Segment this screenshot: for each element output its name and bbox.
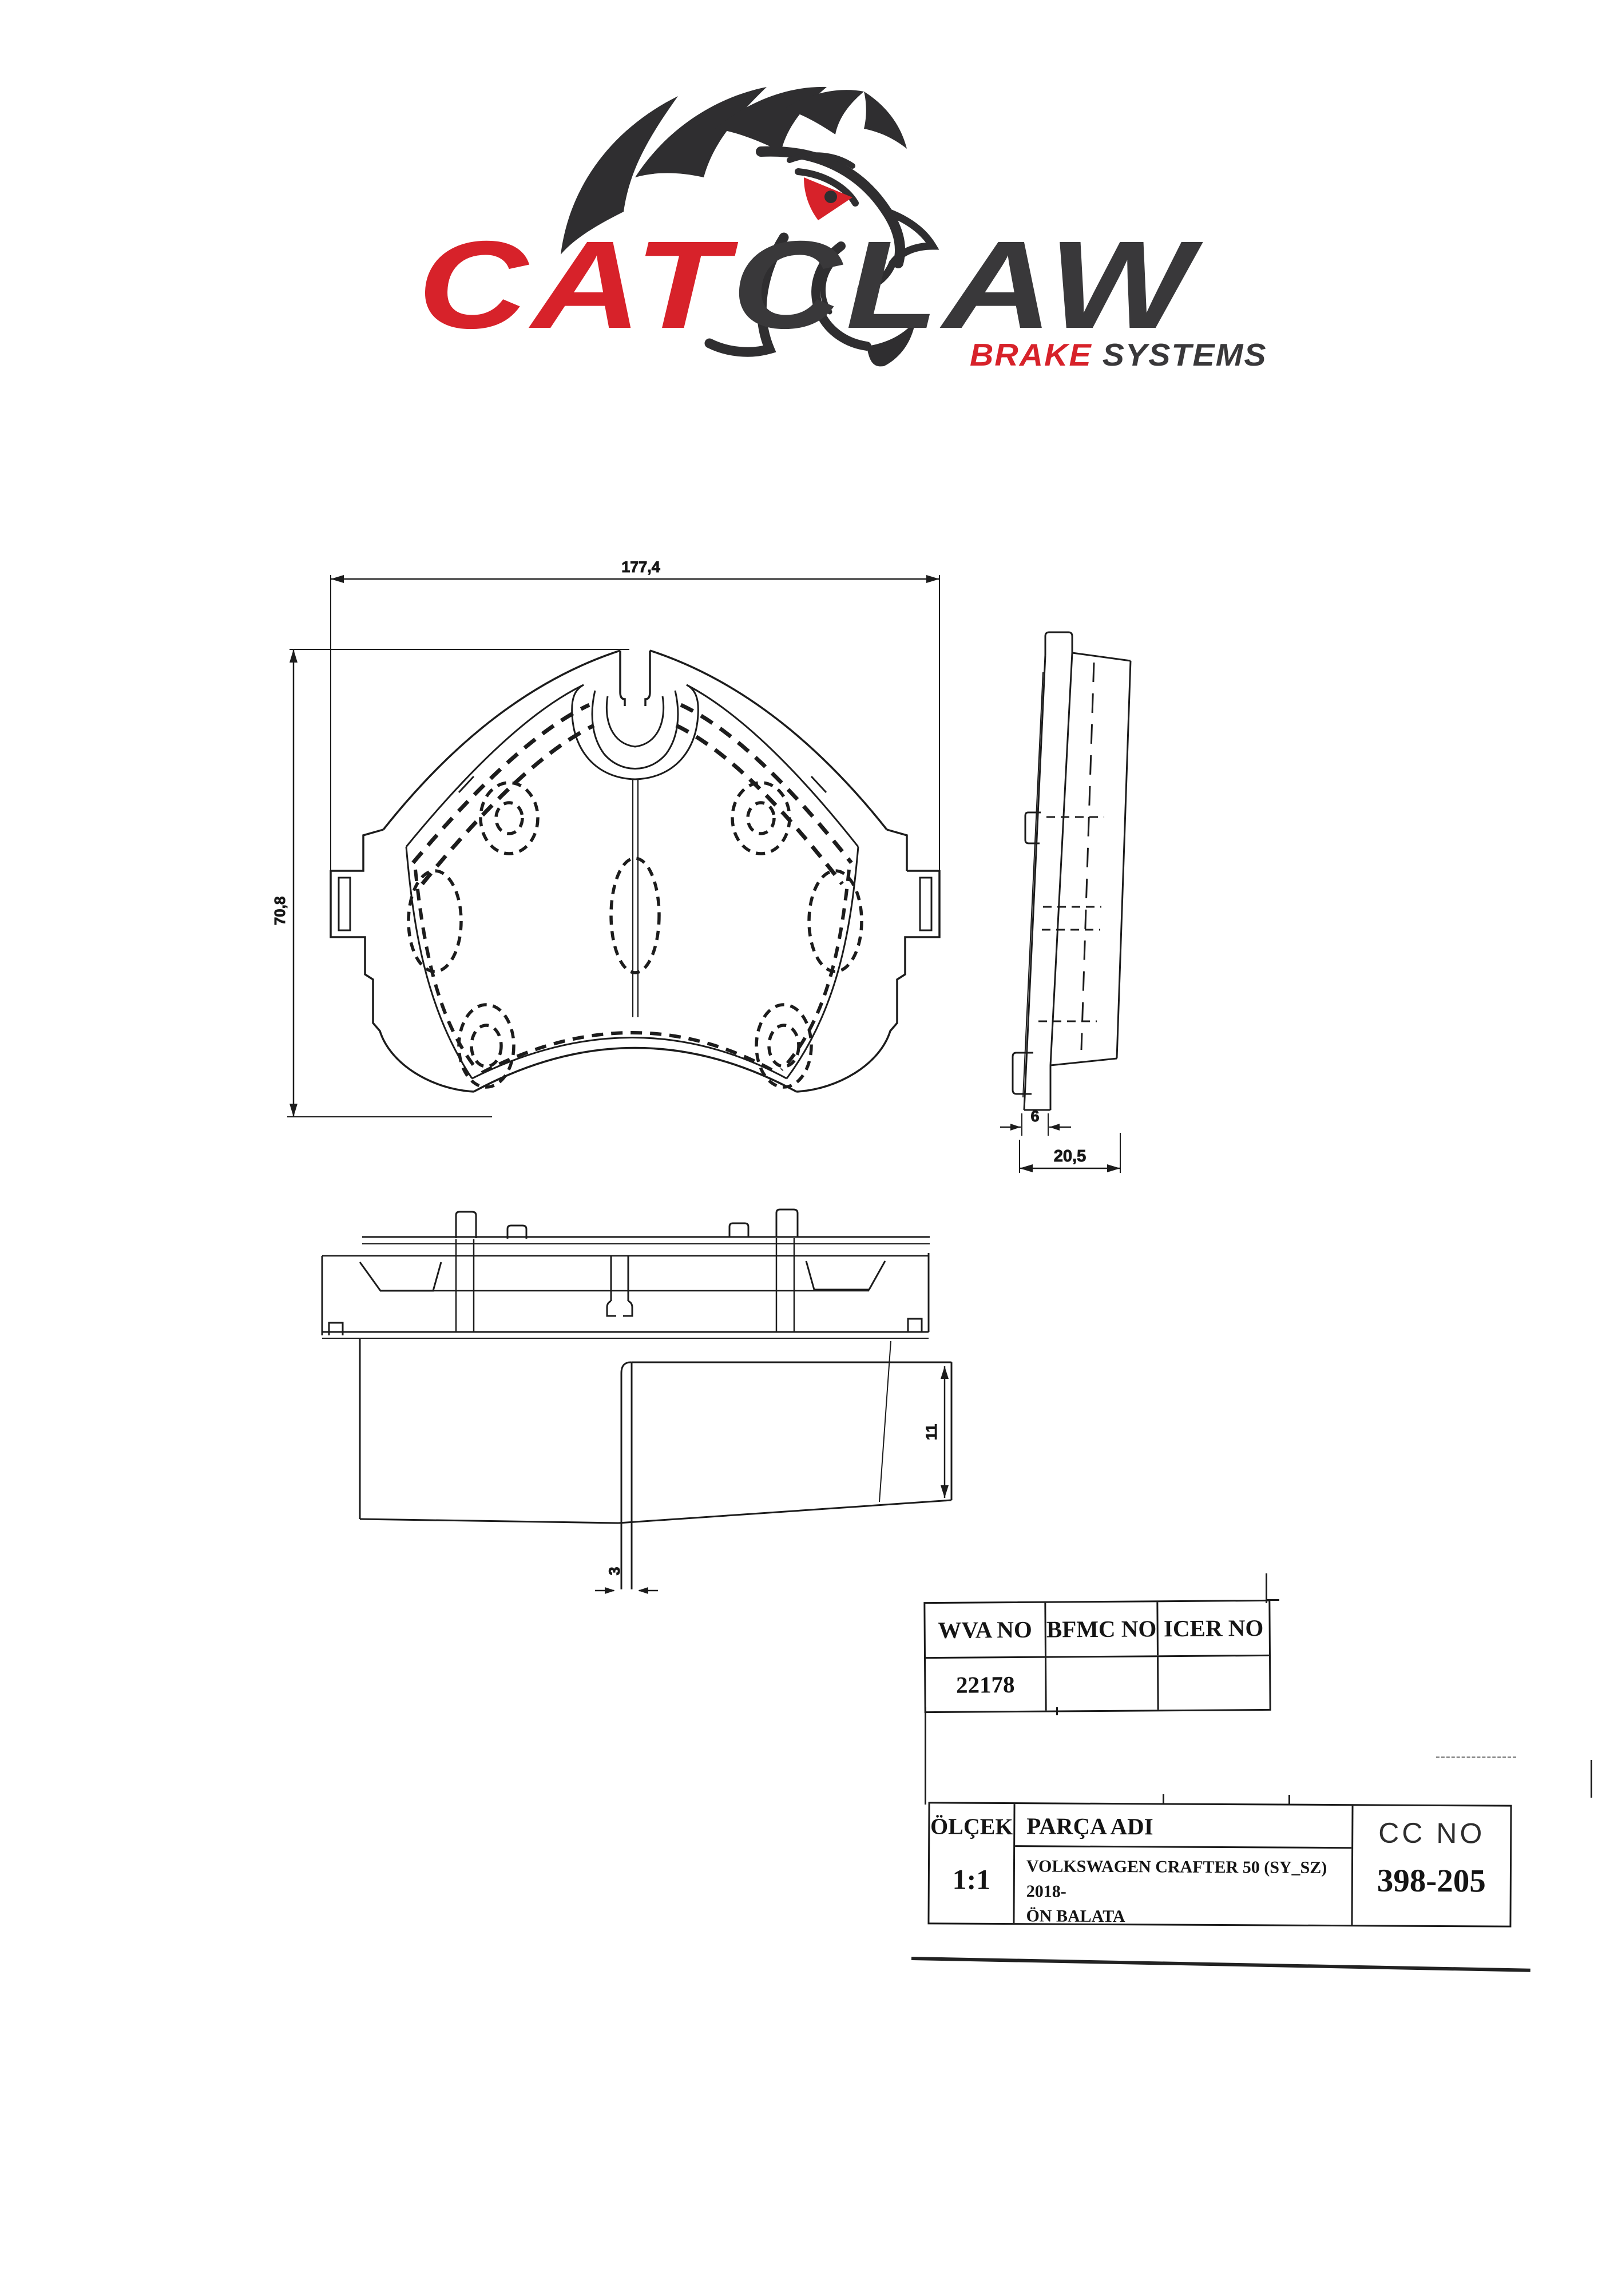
tagline-secondary-text: SYSTEMS [1103,337,1267,372]
backplate-thickness-dimension: 6 [1000,1108,1071,1136]
side-hole-projections [1038,817,1104,1021]
cc-no-column: CC NO 398-205 [1353,1806,1510,1925]
bfmc-no-header: BFMC NO [1046,1602,1159,1656]
left-ear-slot [339,878,350,930]
total-thickness-dim-label: 20,5 [1054,1147,1086,1165]
brand-tagline: BRAKE SYSTEMS [970,336,1267,373]
total-thickness-dimension: 20,5 [1020,1133,1120,1173]
eye [804,177,852,220]
cc-no-value: 398-205 [1377,1862,1486,1900]
scale-value: 1:1 [952,1863,990,1896]
plan-lug-4 [776,1210,798,1237]
scale-column: ÖLÇEK 1:1 [929,1803,1015,1923]
reference-table-header-row: WVA NO BFMC NO ICER NO [925,1601,1269,1659]
lower-left-hole [459,1005,514,1087]
scale-label: ÖLÇEK [930,1813,1013,1840]
tagline-primary-text: BRAKE [970,337,1092,372]
title-block-tick-2 [1288,1795,1290,1805]
plan-strip-outline [322,1210,930,1338]
front-view-drawing: 177,4 70,8 [263,549,973,1139]
side-view-drawing: 6 20,5 [984,601,1156,1179]
brand-wordmark: CATCLAW [418,223,1196,348]
friction-height-dim-label: 11 [923,1424,940,1441]
brand-logo: CATCLAW BRAKE SYSTEMS [400,69,1304,389]
brand-primary-text: CAT [418,216,732,355]
brand-secondary-text: CLAW [732,216,1196,355]
hole-circles [409,783,862,1087]
frame-tick-far-right [1591,1760,1592,1798]
upper-right-hole [732,783,790,854]
wva-no-header: WVA NO [925,1603,1046,1657]
upper-left-hole [481,783,538,854]
icer-no-header: ICER NO [1158,1601,1269,1655]
scan-artifact-dashes [1436,1756,1516,1758]
table-top-extension [1267,1599,1279,1601]
right-ear-slot [920,878,931,930]
scanned-datasheet-page: { "logo": { "brand_primary": "CAT", "bra… [0,0,1606,2296]
mid-left-hole [409,871,461,971]
plan-friction-outline [360,1338,951,1589]
plan-lug-1 [456,1212,476,1238]
cc-no-label: CC NO [1378,1816,1485,1850]
slot-width-dim-label: 3 [606,1567,623,1575]
slot-width-dimension: 3 [595,1567,658,1594]
plan-lug-3 [729,1223,748,1237]
plan-center-slot [611,1256,628,1301]
part-name-column: PARÇA ADI VOLKSWAGEN CRAFTER 50 (SY_SZ) … [1014,1804,1353,1925]
plan-view-drawing: 11 3 [306,1189,978,1615]
side-outline [1013,632,1131,1110]
height-dim-label: 70,8 [271,897,288,926]
bfmc-no-value [1046,1657,1159,1711]
table-connector-line [925,1707,926,1805]
title-block: ÖLÇEK 1:1 PARÇA ADI VOLKSWAGEN CRAFTER 5… [927,1802,1512,1927]
sheet-border-line [911,1957,1530,1972]
part-name-label: PARÇA ADI [1015,1804,1351,1849]
backplate-dim-label: 6 [1030,1108,1039,1125]
reference-table-value-row: 22178 [926,1656,1270,1711]
part-name-line1: VOLKSWAGEN CRAFTER 50 (SY_SZ) 2018- [1026,1854,1351,1905]
center-hole [611,858,659,973]
center-split-line [633,779,638,1017]
side-center-dashed [1081,663,1094,1050]
reference-table: WVA NO BFMC NO ICER NO 22178 [923,1600,1271,1713]
table-bottom-tick [1056,1707,1058,1715]
part-name-line2: ÖN BALATA [1026,1904,1351,1930]
wva-no-value: 22178 [926,1657,1047,1711]
width-dimension: 177,4 [331,558,939,873]
lower-right-hole [756,1005,811,1087]
width-dim-label: 177,4 [621,558,660,576]
icer-no-value [1159,1656,1270,1710]
title-block-tick-1 [1163,1794,1164,1804]
friction-height-dimension: 11 [923,1366,949,1498]
